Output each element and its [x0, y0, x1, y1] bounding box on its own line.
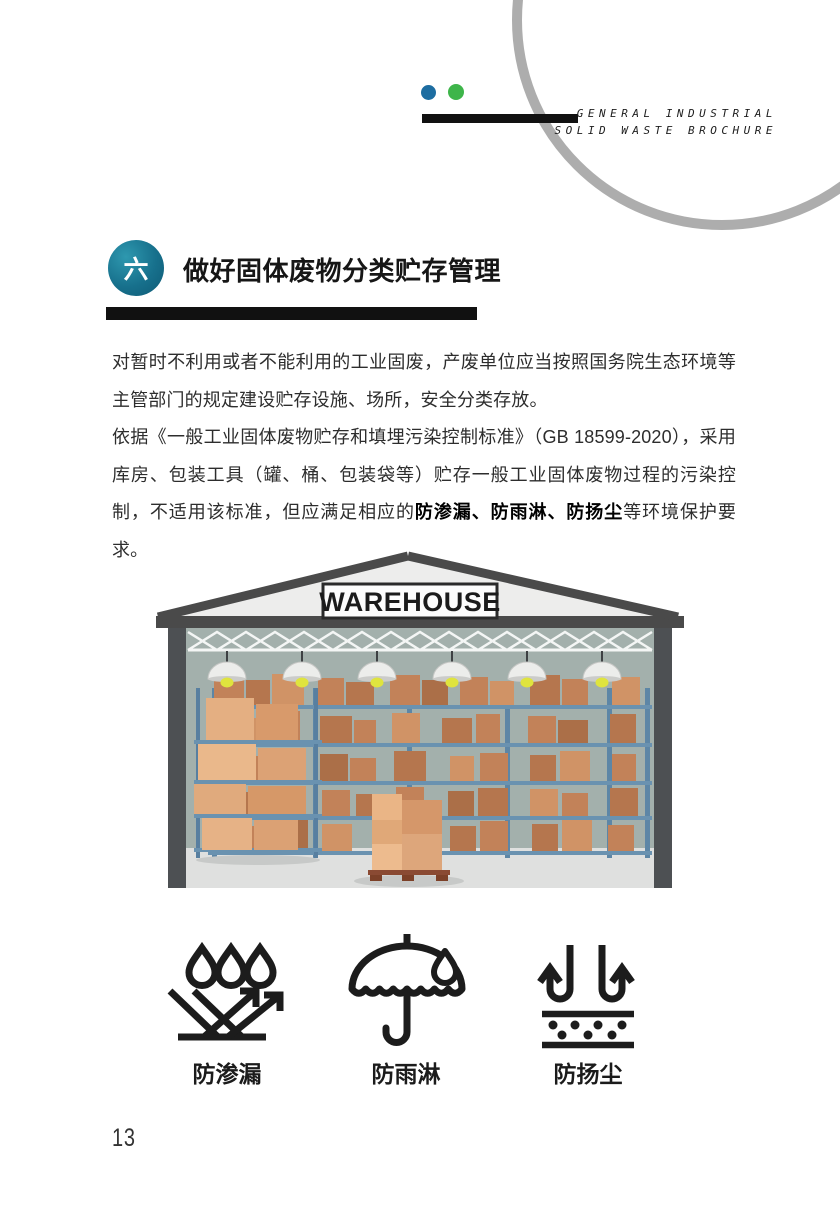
page-number: 13 [112, 1124, 136, 1153]
green-dot [448, 84, 464, 100]
section-number: 六 [123, 250, 148, 286]
warehouse-sign: WAREHOUSE [319, 584, 501, 618]
blue-dot [421, 85, 436, 100]
left-column [168, 626, 186, 888]
right-column [654, 626, 672, 888]
title-underline-bar [106, 307, 477, 320]
brochure-page: GENERAL INDUSTRIAL SOLID WASTE BROCHURE … [0, 0, 840, 1208]
warehouse-illustration: WAREHOUSE [150, 548, 690, 896]
feature-label-anti-dust: 防扬尘 [523, 1055, 653, 1089]
paragraph-2-bold-keywords: 防渗漏、防雨淋、防扬尘 [415, 502, 623, 522]
anti-dust-icon [528, 939, 648, 1049]
feature-label-anti-rain: 防雨淋 [341, 1055, 471, 1089]
warehouse-sign-text: WAREHOUSE [319, 587, 501, 617]
anti-rain-icon [345, 929, 467, 1057]
paragraph-1-text: 对暂时不利用或者不能利用的工业固废，产废单位应当按照国务院生态环境等主管部门的规… [112, 352, 736, 410]
paragraph-2: 依据《一般工业固体废物贮存和填埋污染控制标准》（GB 18599-2020），采… [112, 419, 736, 569]
brand-line-1: GENERAL INDUSTRIAL [555, 105, 777, 122]
section-number-badge: 六 [108, 240, 164, 296]
anti-seepage-icon [166, 941, 288, 1043]
feature-label-anti-seepage: 防渗漏 [162, 1055, 292, 1089]
paragraph-1: 对暂时不利用或者不能利用的工业固废，产废单位应当按照国务院生态环境等主管部门的规… [112, 344, 736, 419]
brand-line-2: SOLID WASTE BROCHURE [555, 122, 777, 139]
brochure-brand: GENERAL INDUSTRIAL SOLID WASTE BROCHURE [555, 105, 777, 139]
section-title: 做好固体废物分类贮存管理 [183, 251, 501, 288]
body-text: 对暂时不利用或者不能利用的工业固废，产废单位应当按照国务院生态环境等主管部门的规… [112, 344, 736, 569]
